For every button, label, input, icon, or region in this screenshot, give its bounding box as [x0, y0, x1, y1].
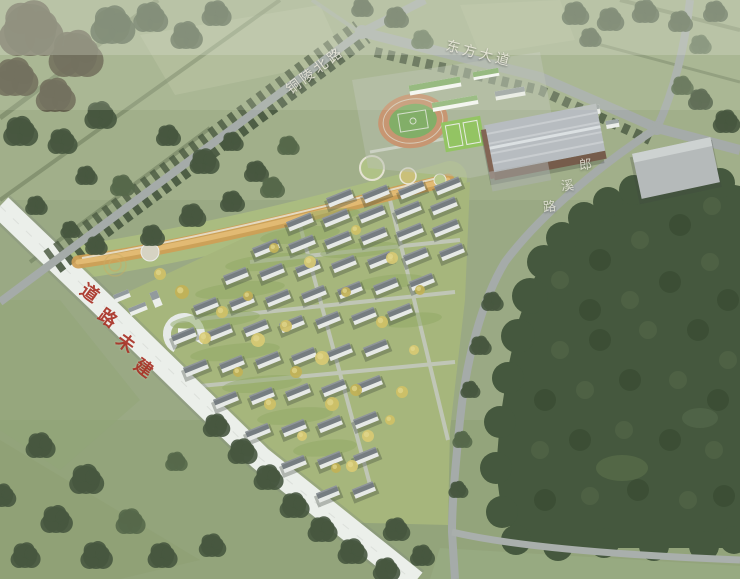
label-langxi-road-char: 路 — [542, 198, 557, 215]
label-langxi-road-char: 郎 — [578, 157, 593, 173]
label-langxi-road-char: 溪 — [560, 178, 575, 194]
haze-overlay — [0, 0, 740, 579]
aerial-rendering: 铜陵北路 东方大道 郎溪路道路未建 — [0, 0, 740, 579]
